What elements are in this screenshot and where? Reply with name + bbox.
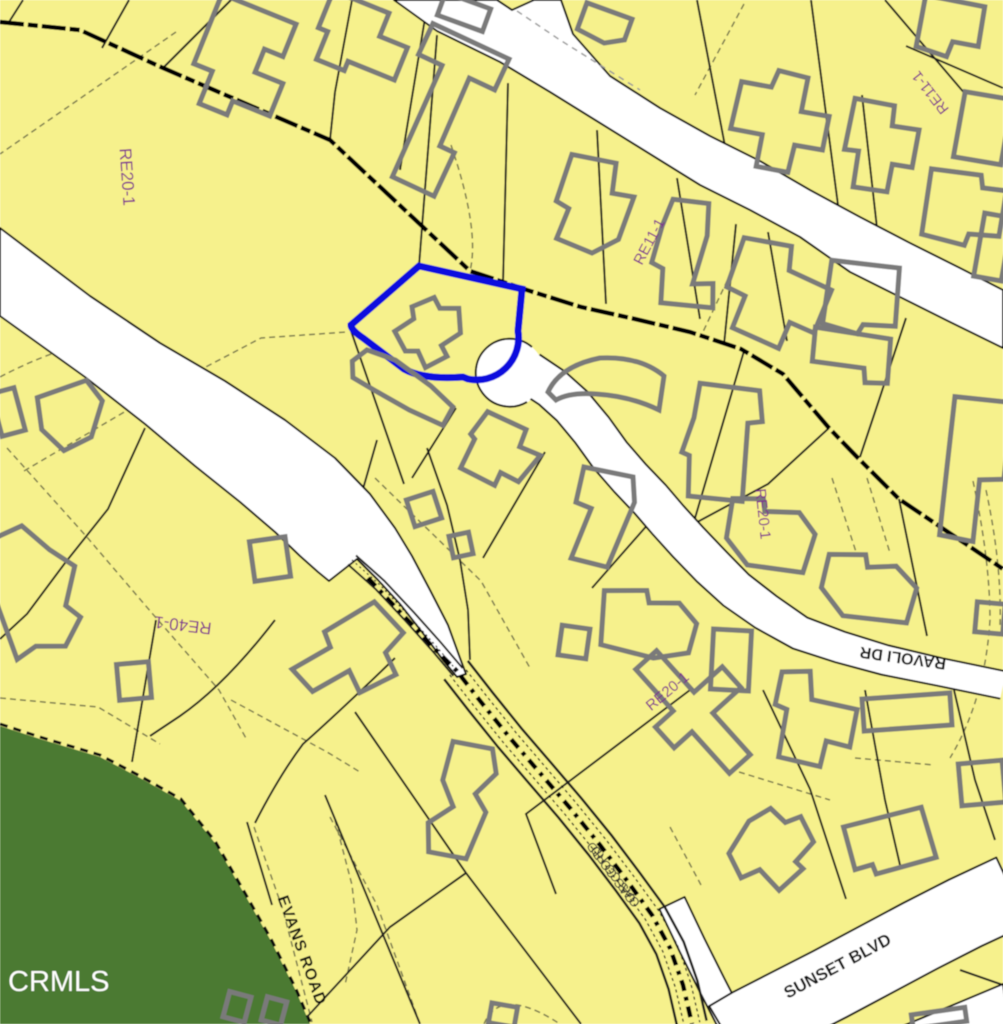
svg-text:RE20-1: RE20-1 [116, 148, 139, 207]
svg-text:CRMLS: CRMLS [8, 966, 110, 998]
